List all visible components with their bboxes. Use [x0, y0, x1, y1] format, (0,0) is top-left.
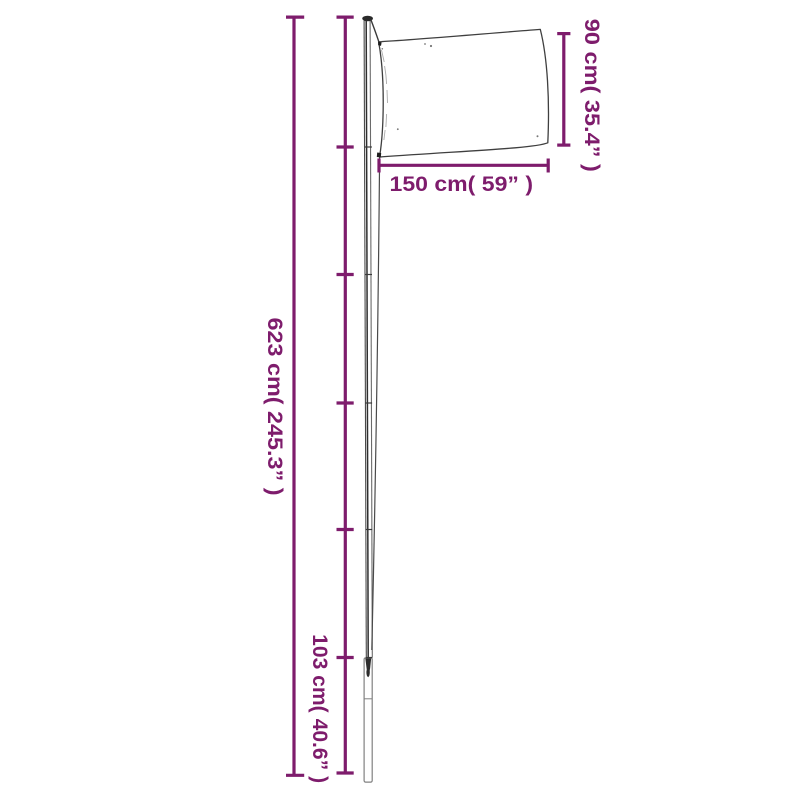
- svg-text:90 cm( 35.4” ): 90 cm( 35.4” ): [580, 19, 604, 172]
- svg-text:103 cm( 40.6” ): 103 cm( 40.6” ): [308, 634, 332, 783]
- svg-text:623 cm( 245.3” ): 623 cm( 245.3” ): [263, 318, 287, 496]
- svg-text:150 cm( 59” ): 150 cm( 59” ): [390, 172, 534, 196]
